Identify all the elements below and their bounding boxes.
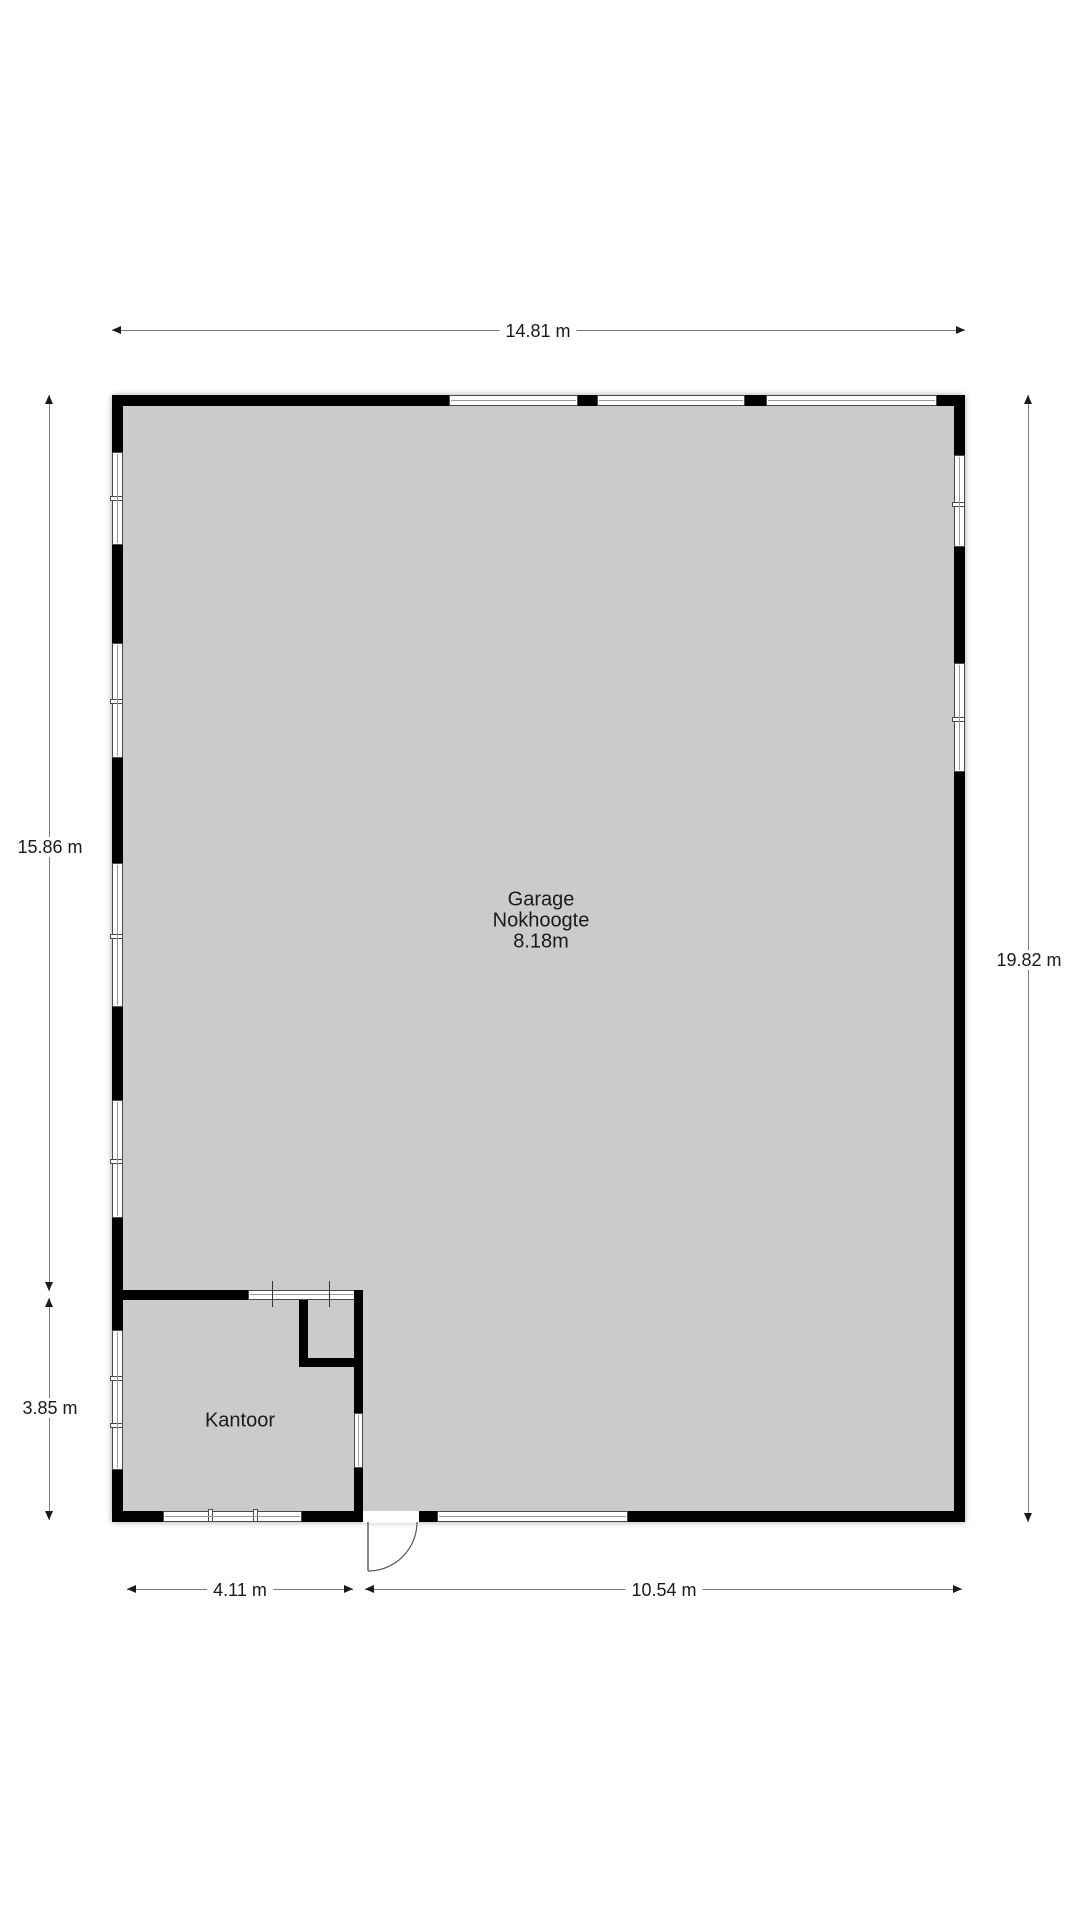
window-right-1	[954, 455, 965, 547]
window-top-2	[597, 395, 745, 406]
window-mullion	[110, 1159, 123, 1164]
exterior-wall-right-3	[954, 772, 965, 1522]
garage-ridge-height: 8.18m	[493, 932, 590, 953]
exterior-wall-bottom-4	[628, 1511, 965, 1522]
arrowhead	[344, 1585, 353, 1593]
exterior-wall-right-2	[954, 547, 965, 663]
dimension-label-right: 19.82 m	[990, 950, 1067, 970]
window-mullion	[952, 717, 965, 722]
arrowhead	[956, 326, 965, 334]
arrowhead	[45, 1511, 53, 1520]
arrowhead	[45, 1282, 53, 1291]
garage-attribute: Nokhoogte	[493, 911, 590, 932]
room-label-garage: Garage Nokhoogte 8.18m	[493, 890, 590, 953]
dimension-label-left-upper: 15.86 m	[11, 837, 88, 857]
window-left-3	[112, 863, 123, 1007]
exterior-wall-left-2	[112, 545, 123, 643]
garage-floor	[112, 395, 965, 1522]
exterior-wall-top-3	[745, 395, 766, 406]
exterior-wall-bottom-3	[419, 1511, 437, 1522]
partition-divider-tick	[272, 1281, 273, 1307]
window-left-1	[112, 452, 123, 545]
door-opening	[363, 1511, 419, 1523]
arrowhead	[1024, 1513, 1032, 1522]
window-mullion	[110, 1376, 123, 1381]
window-mullion	[208, 1509, 213, 1522]
partition-divider-tick	[329, 1281, 330, 1307]
arrowhead	[112, 326, 121, 334]
interior-window-kantoor	[354, 1413, 363, 1468]
window-left-4	[112, 1100, 123, 1218]
exterior-wall-left-3	[112, 758, 123, 863]
exterior-wall-top-2	[578, 395, 597, 406]
room-label-kantoor: Kantoor	[205, 1411, 275, 1432]
arrowhead	[953, 1585, 962, 1593]
exterior-wall-top-1	[112, 395, 449, 406]
window-right-2	[954, 663, 965, 772]
window-bottom-2	[437, 1511, 628, 1522]
exterior-wall-left-6	[112, 1470, 123, 1522]
arrowhead	[1024, 395, 1032, 404]
window-top-1	[449, 395, 578, 406]
window-left-5	[112, 1330, 123, 1470]
exterior-wall-left-5	[112, 1218, 123, 1330]
dimension-label-bottom-left: 4.11 m	[207, 1580, 273, 1600]
garage-name: Garage	[493, 890, 590, 911]
exterior-wall-right-1	[954, 395, 965, 455]
window-mullion	[952, 502, 965, 507]
dimension-label-left-lower: 3.85 m	[16, 1398, 83, 1418]
exterior-wall-left-1	[112, 395, 123, 452]
interior-wall-kantoor-right-lower	[354, 1468, 363, 1511]
window-mullion	[110, 934, 123, 939]
exterior-wall-left-4	[112, 1007, 123, 1100]
dimension-label-top: 14.81 m	[499, 321, 576, 341]
window-mullion	[110, 699, 123, 704]
window-mullion	[253, 1509, 258, 1522]
interior-wall-closet-left	[299, 1300, 308, 1367]
interior-wall-kantoor-top	[123, 1290, 248, 1300]
window-mullion	[110, 496, 123, 501]
window-mullion	[110, 1423, 123, 1428]
interior-wall-kantoor-right-upper	[354, 1290, 363, 1413]
arrowhead	[365, 1585, 374, 1593]
arrowhead	[45, 1298, 53, 1307]
dimension-label-bottom-right: 10.54 m	[625, 1580, 702, 1600]
arrowhead	[127, 1585, 136, 1593]
window-left-2	[112, 643, 123, 758]
window-top-3	[766, 395, 937, 406]
exterior-wall-bottom-2	[302, 1511, 363, 1522]
interior-glazed-partition	[248, 1290, 356, 1300]
arrowhead	[45, 395, 53, 404]
floor-plan: 14.81 m 15.86 m 3.85 m 19.82 m 4.11 m 10…	[0, 0, 1080, 1920]
window-bottom-1	[163, 1511, 302, 1522]
